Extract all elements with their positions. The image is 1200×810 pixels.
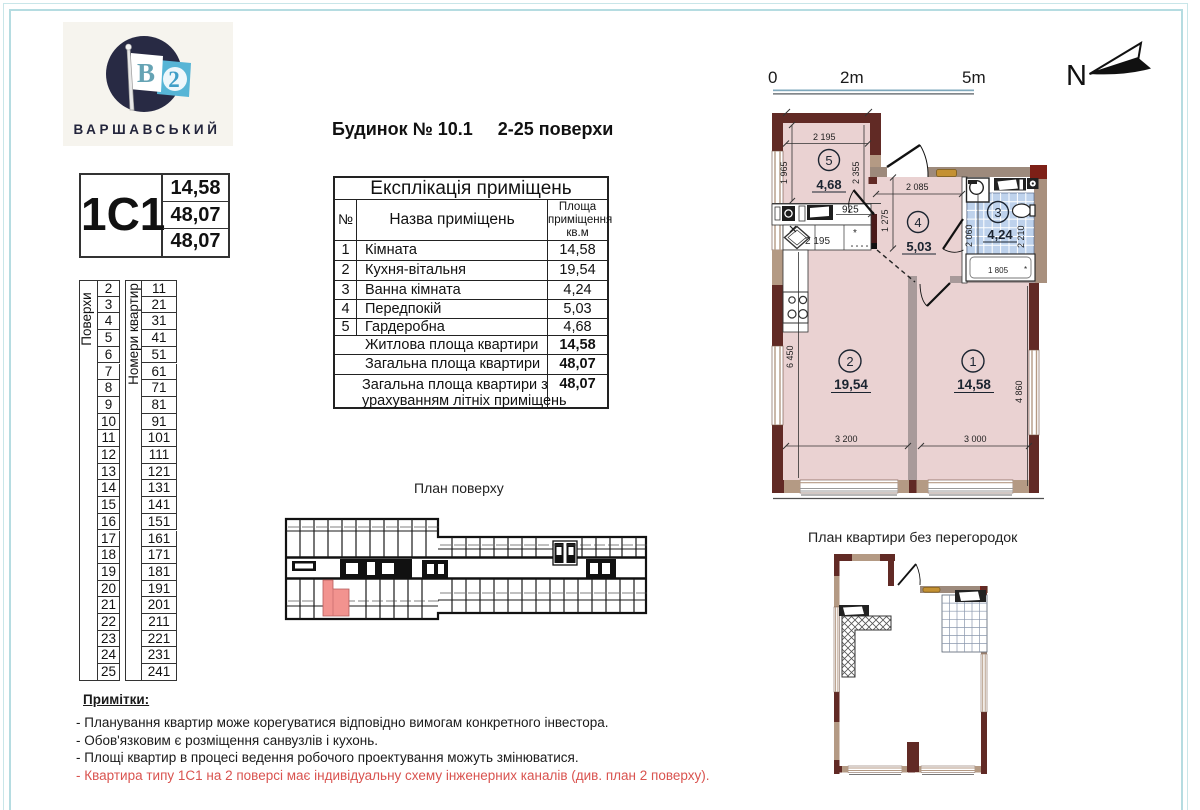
svg-text:5: 5 bbox=[825, 153, 832, 168]
svg-text:1: 1 bbox=[969, 354, 976, 369]
svg-text:4,68: 4,68 bbox=[816, 177, 841, 192]
svg-text:3: 3 bbox=[994, 205, 1001, 220]
svg-text:4,24: 4,24 bbox=[987, 227, 1013, 242]
svg-text:В: В bbox=[137, 58, 155, 88]
svg-text:14,58: 14,58 bbox=[957, 377, 991, 392]
svg-text:4: 4 bbox=[914, 215, 921, 230]
svg-text:2 355: 2 355 bbox=[851, 161, 861, 184]
svg-text:3 200: 3 200 bbox=[835, 434, 858, 444]
svg-text:1 275: 1 275 bbox=[880, 209, 890, 232]
svg-text:2 195: 2 195 bbox=[813, 132, 836, 142]
svg-text:2m: 2m bbox=[840, 68, 864, 87]
svg-text:*: * bbox=[1024, 265, 1027, 274]
svg-text:*: * bbox=[853, 228, 857, 239]
svg-text:3 000: 3 000 bbox=[964, 434, 987, 444]
svg-text:ВАРШАВСЬКИЙ: ВАРШАВСЬКИЙ bbox=[73, 122, 220, 137]
svg-text:2 085: 2 085 bbox=[906, 182, 929, 192]
svg-text:N: N bbox=[1066, 60, 1087, 92]
svg-text:0: 0 bbox=[768, 68, 777, 87]
svg-text:19,54: 19,54 bbox=[834, 377, 868, 392]
svg-text:2 195: 2 195 bbox=[805, 236, 830, 247]
svg-text:2: 2 bbox=[846, 354, 853, 369]
svg-text:2: 2 bbox=[168, 67, 180, 92]
svg-text:5,03: 5,03 bbox=[906, 239, 931, 254]
svg-text:1 805: 1 805 bbox=[988, 266, 1009, 275]
svg-text:6 450: 6 450 bbox=[785, 345, 795, 368]
svg-text:925: 925 bbox=[842, 205, 859, 216]
svg-text:2 060: 2 060 bbox=[964, 224, 974, 247]
svg-text:4 860: 4 860 bbox=[1014, 380, 1024, 403]
svg-text:2 210: 2 210 bbox=[1016, 225, 1026, 248]
svg-text:5m: 5m bbox=[962, 68, 986, 87]
svg-text:1 965: 1 965 bbox=[779, 161, 789, 184]
